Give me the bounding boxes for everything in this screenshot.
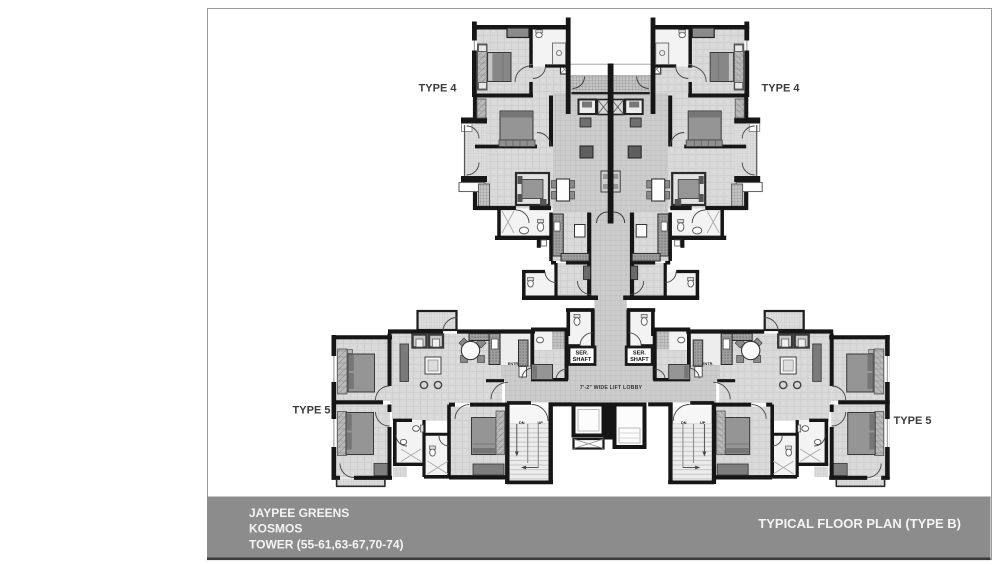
svg-text:KOSMOS: KOSMOS bbox=[249, 522, 302, 536]
svg-text:JAYPEE GREENS: JAYPEE GREENS bbox=[249, 506, 349, 520]
svg-text:SER.: SER. bbox=[633, 351, 647, 357]
svg-text:SHAFT: SHAFT bbox=[573, 357, 592, 363]
svg-text:UP: UP bbox=[538, 421, 544, 425]
svg-text:TYPE 5: TYPE 5 bbox=[293, 405, 331, 417]
svg-text:TYPE 5: TYPE 5 bbox=[894, 415, 932, 427]
svg-text:SER.: SER. bbox=[575, 351, 589, 357]
svg-text:DN: DN bbox=[519, 421, 525, 425]
svg-text:TOWER (55-61,63-67,70-74): TOWER (55-61,63-67,70-74) bbox=[249, 537, 404, 551]
svg-text:TYPE 4: TYPE 4 bbox=[762, 83, 801, 95]
svg-text:DN: DN bbox=[681, 421, 687, 425]
svg-text:TYPICAL FLOOR PLAN (TYPE B): TYPICAL FLOOR PLAN (TYPE B) bbox=[758, 516, 961, 531]
svg-text:ENTR.: ENTR. bbox=[508, 362, 519, 366]
svg-text:SHAFT: SHAFT bbox=[630, 357, 649, 363]
svg-text:TYPE 4: TYPE 4 bbox=[419, 83, 458, 95]
svg-text:7'-2" WIDE LIFT LOBBY: 7'-2" WIDE LIFT LOBBY bbox=[580, 385, 643, 391]
svg-text:ENTR.: ENTR. bbox=[702, 362, 713, 366]
svg-text:UP: UP bbox=[700, 421, 706, 425]
